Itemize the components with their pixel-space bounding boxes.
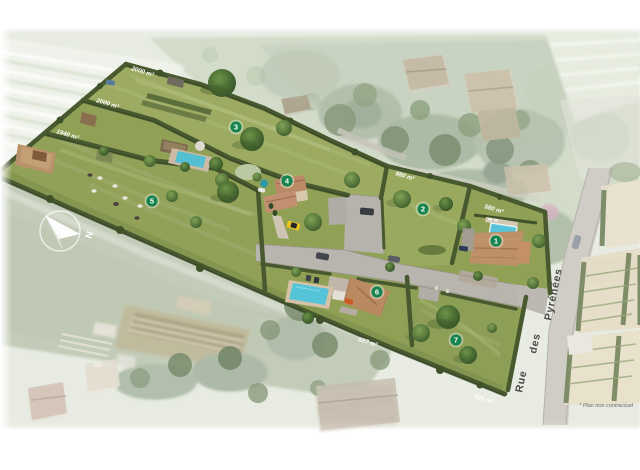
- svg-text:2: 2: [421, 205, 425, 214]
- svg-text:6: 6: [375, 288, 379, 297]
- svg-text:5: 5: [150, 197, 154, 206]
- svg-text:1: 1: [494, 237, 498, 246]
- svg-text:3: 3: [234, 123, 238, 132]
- svg-text:* Plan non contractuel: * Plan non contractuel: [579, 403, 634, 409]
- svg-text:7: 7: [454, 336, 458, 345]
